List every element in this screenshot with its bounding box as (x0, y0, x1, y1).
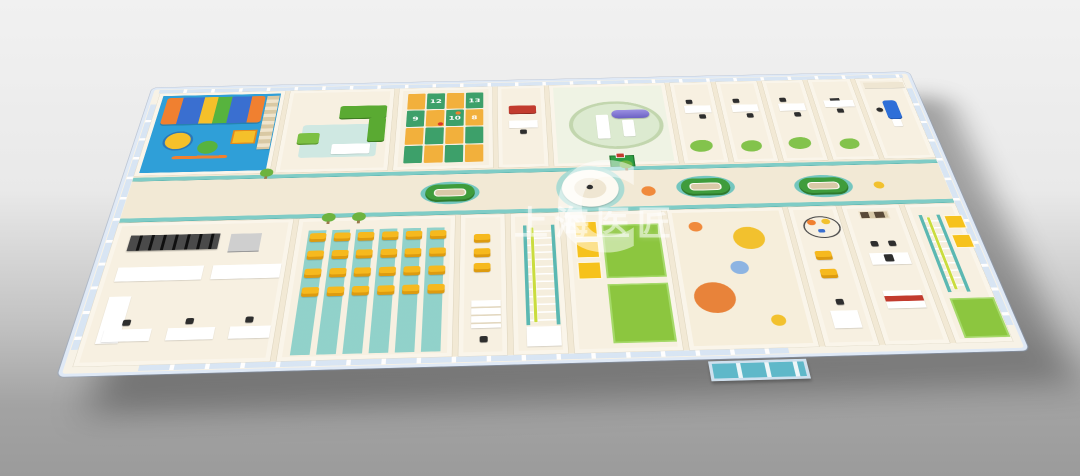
green-floor-decal (740, 140, 764, 152)
office-chair (732, 99, 740, 103)
waiting-chair (428, 265, 445, 275)
corridor-bench (425, 184, 475, 202)
hopscotch-tile (424, 145, 443, 163)
reception-counter (114, 266, 204, 282)
bench-top (797, 177, 851, 195)
corridor-bench (797, 177, 851, 195)
green-sofa-corner (367, 117, 386, 141)
hopscotch-tile (403, 146, 423, 164)
yellow-mat (577, 261, 603, 279)
rendered-floorplan-image: 12139108 (0, 0, 1080, 476)
front-desk (101, 329, 152, 343)
storage-shelf (471, 300, 501, 328)
room-exam-small (497, 86, 548, 168)
waiting-chair (403, 266, 420, 276)
beanbag-yellow (821, 219, 831, 225)
stair-landing (527, 326, 562, 347)
office-chair (122, 320, 132, 326)
waiting-chair (333, 232, 350, 241)
hopscotch-tile (446, 93, 464, 109)
front-desk (228, 326, 271, 339)
sub-wait-chairs (474, 234, 491, 273)
staircase-left-room (510, 213, 568, 355)
floor-dot (729, 261, 750, 275)
green-armchair (297, 133, 321, 144)
waiting-area (276, 215, 455, 361)
waiting-chair (355, 249, 373, 258)
bench-slot (689, 182, 723, 190)
play-mat-green (196, 141, 220, 154)
waiting-chair (331, 250, 349, 259)
waiting-chair (427, 284, 444, 294)
reception-counter (210, 264, 281, 280)
consult-desk (731, 104, 759, 112)
imaging-console (622, 120, 636, 137)
green-floor-decal (787, 137, 813, 149)
waiting-chair (429, 247, 446, 256)
waiting-chair (357, 232, 374, 241)
green-floor-decal (838, 138, 861, 149)
room-indoor-playground (134, 91, 286, 176)
waiting-chair (404, 248, 421, 257)
office-chair (870, 241, 879, 246)
waiting-chair-rows (290, 227, 451, 355)
floor-dot (688, 222, 703, 232)
office-chair (835, 299, 844, 305)
waiting-chair (378, 267, 396, 277)
exam-bed-red-stripe (884, 295, 924, 301)
printer-machine (228, 233, 263, 251)
waiting-chair (351, 286, 369, 296)
green-floor-decal (689, 140, 714, 152)
hopscotch-tile: 8 (465, 109, 483, 126)
bench-slot (806, 181, 840, 189)
clinic-floor-plan: 12139108 (62, 74, 1024, 374)
front-desk (165, 327, 215, 340)
stool (876, 108, 884, 112)
toy-blue (818, 229, 826, 233)
hopscotch-tile (425, 127, 444, 144)
lounge-table (330, 143, 370, 154)
hopscotch-tile (445, 127, 464, 144)
play-structure (160, 96, 266, 125)
waiting-chair (377, 285, 395, 295)
office-chair (480, 336, 488, 342)
floor-dot (770, 314, 787, 326)
small-red-sign (615, 153, 625, 158)
waiting-chair (819, 269, 838, 279)
nurse-station (561, 169, 621, 207)
beanbag-orange (806, 220, 816, 226)
bench-slot (434, 188, 467, 196)
entrance-vestibule-doors (708, 359, 811, 382)
hopscotch-tile (407, 94, 426, 110)
exam-couch-red (509, 105, 537, 113)
office-chair (746, 113, 754, 117)
waiting-chair (306, 250, 324, 259)
floor-dot (641, 186, 657, 196)
hopscotch-tile (465, 144, 484, 162)
waiting-chair (474, 234, 490, 243)
hopscotch-tile (465, 126, 483, 143)
room-family-lounge (275, 89, 394, 173)
waiting-chair (329, 268, 347, 278)
staff-figure (586, 185, 593, 190)
green-mat (607, 283, 677, 344)
office-chair (794, 112, 802, 116)
dental-chair-blue (882, 100, 903, 118)
counter (863, 82, 905, 89)
play-mat-square (230, 130, 258, 144)
bench-top (425, 184, 475, 202)
bench-top (680, 178, 732, 196)
waiting-chair (380, 249, 397, 258)
waiting-chair (304, 268, 322, 278)
waiting-chair (381, 231, 398, 240)
consult-desk (684, 105, 712, 113)
play-mat-round (160, 131, 196, 151)
polka-dot-floor (672, 211, 814, 347)
office-chair (836, 108, 844, 112)
office-chair (520, 129, 527, 133)
yellow-mat (574, 221, 599, 238)
waiting-chair (309, 233, 327, 242)
corridor-bench (680, 178, 732, 196)
imaging-oval-rug (567, 100, 667, 150)
room-sub-waiting (458, 214, 507, 356)
office-chair (779, 98, 787, 102)
chair-base (892, 119, 904, 127)
floor-dot (731, 226, 768, 249)
hopscotch-tile: 13 (466, 92, 484, 108)
imaging-machine-purple (611, 109, 650, 118)
waiting-chair (430, 230, 447, 239)
small-desk (830, 310, 862, 328)
green-sofa (339, 105, 387, 118)
waiting-chair (474, 263, 491, 273)
tree-decal (619, 160, 633, 168)
exam-desk (509, 120, 538, 128)
office-chair (245, 316, 254, 322)
waiting-chair (474, 248, 491, 257)
office-chair (185, 318, 194, 324)
room-imaging-center (549, 83, 679, 166)
waiting-chair (353, 267, 371, 277)
room-rehab-mats-left (565, 210, 684, 353)
consult-desk (778, 103, 806, 111)
yellow-mat (575, 241, 600, 259)
office-chair (888, 241, 897, 246)
room-hopscotch-play: 12139108 (393, 87, 493, 170)
office-chair (699, 114, 706, 118)
floor-dot (692, 282, 739, 314)
monitor (829, 98, 839, 101)
green-mat (601, 224, 667, 279)
equipment-rack (127, 233, 221, 251)
waiting-chair (402, 284, 420, 294)
hopscotch-tile (444, 145, 463, 163)
floor-dot (873, 181, 886, 188)
wall-cabinet-vents (858, 211, 891, 220)
waiting-chair (814, 251, 833, 260)
hopscotch-tile: 12 (427, 93, 445, 109)
office-chair (685, 100, 692, 104)
waiting-chair (406, 231, 423, 240)
waiting-chair (301, 287, 320, 297)
hopscotch-tile: 9 (406, 110, 425, 127)
hopscotch-tile (405, 128, 424, 145)
balance-beam (171, 155, 227, 159)
waiting-chair (326, 286, 344, 296)
office-desk (823, 100, 855, 107)
staircase-left (523, 225, 561, 326)
hopscotch-number-mat: 12139108 (403, 92, 483, 163)
building-3d-scene: 12139108 (62, 74, 1024, 374)
